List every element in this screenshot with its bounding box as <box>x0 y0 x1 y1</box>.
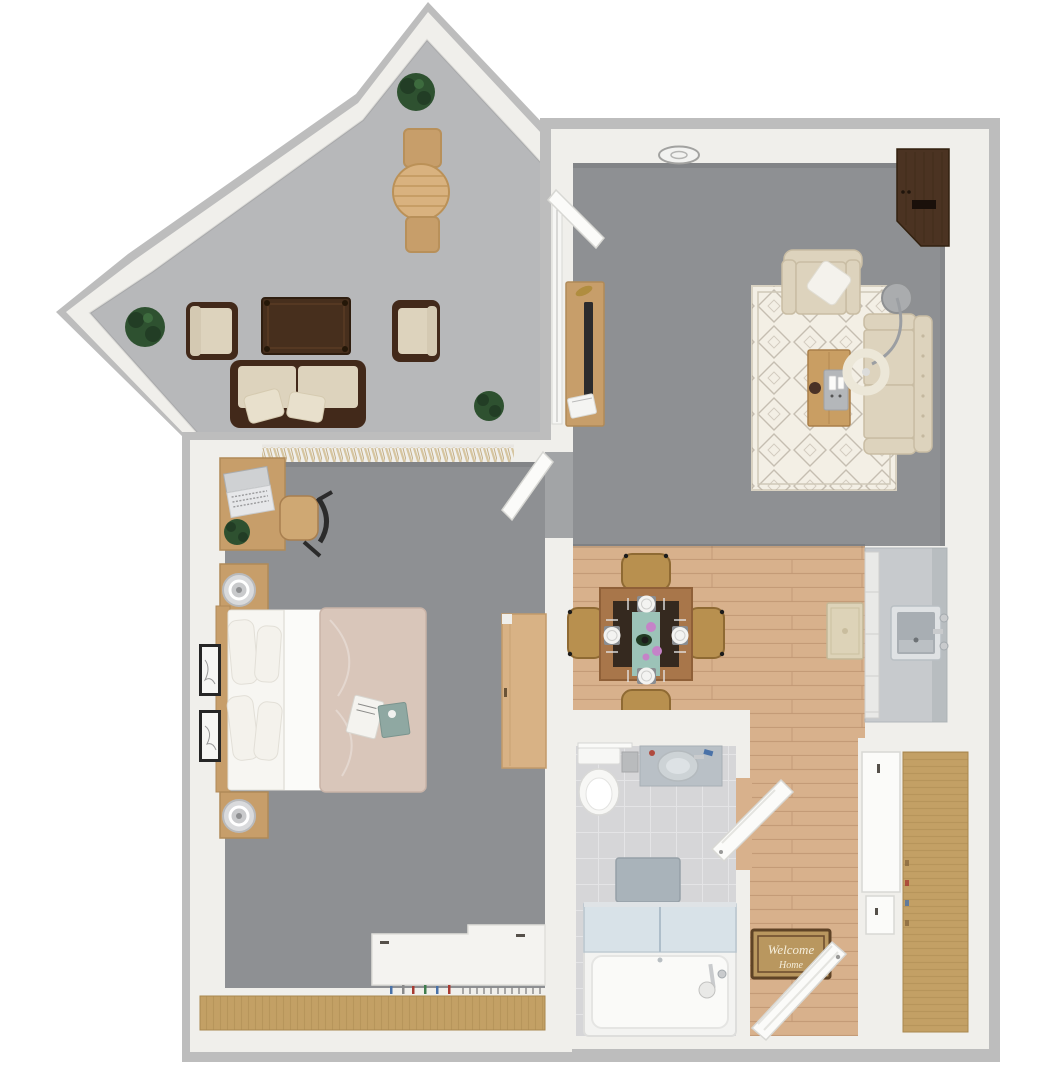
floor-plan: Welcome Home <box>0 0 1057 1092</box>
sheet-fold <box>284 610 322 790</box>
low-cabinet <box>372 925 545 985</box>
desk-plant <box>224 519 250 545</box>
entry-closet <box>858 738 988 1042</box>
bistro-chair-bottom <box>406 217 439 252</box>
ceiling-light-icon <box>659 147 699 164</box>
tp-holder <box>622 752 638 772</box>
coffee-table <box>808 350 850 426</box>
balcony-door-track <box>552 198 562 424</box>
dining-table <box>600 588 692 685</box>
living-armchair <box>782 250 862 314</box>
plant-balcony-corner <box>474 391 504 421</box>
desk <box>220 458 285 550</box>
closet-door-1 <box>862 752 900 892</box>
dining-chair-left <box>568 608 604 658</box>
bed <box>216 606 426 792</box>
tv-console <box>566 282 604 426</box>
decor-bowl <box>809 382 821 394</box>
outdoor-loveseat <box>230 360 366 428</box>
laptop-icon <box>224 467 275 518</box>
kitchen-runner-rug <box>827 603 863 659</box>
welcome-mat-text1: Welcome <box>768 942 815 957</box>
closet-door-2 <box>866 896 894 934</box>
tv-icon <box>584 302 593 396</box>
cabinet-drawers <box>865 552 879 718</box>
toilet <box>578 748 620 815</box>
bath-mat <box>616 858 680 902</box>
plant-top <box>397 73 435 111</box>
kitchen-sink <box>891 606 948 660</box>
outdoor-armchair-left <box>186 302 238 360</box>
floor-plan-page: Welcome Home <box>0 0 1057 1092</box>
dining-chair-right <box>688 608 724 658</box>
outdoor-armchair-right <box>392 300 440 362</box>
bistro-chair-top <box>404 129 441 167</box>
window-curtain <box>262 446 514 462</box>
dresser <box>502 614 546 768</box>
welcome-mat-text2: Home <box>778 960 803 971</box>
nightstand-bottom <box>220 792 268 838</box>
bathtub-shower <box>584 902 736 1036</box>
vanity-sink <box>640 746 722 786</box>
outdoor-coffee-table <box>262 298 350 354</box>
towel-bar <box>578 743 632 748</box>
tray-on-bed <box>378 702 410 738</box>
room-balcony <box>56 2 550 438</box>
plant-left <box>125 307 165 347</box>
nightstand-top <box>220 564 268 610</box>
bistro-table <box>393 164 449 220</box>
dining-chair-top <box>622 554 670 590</box>
